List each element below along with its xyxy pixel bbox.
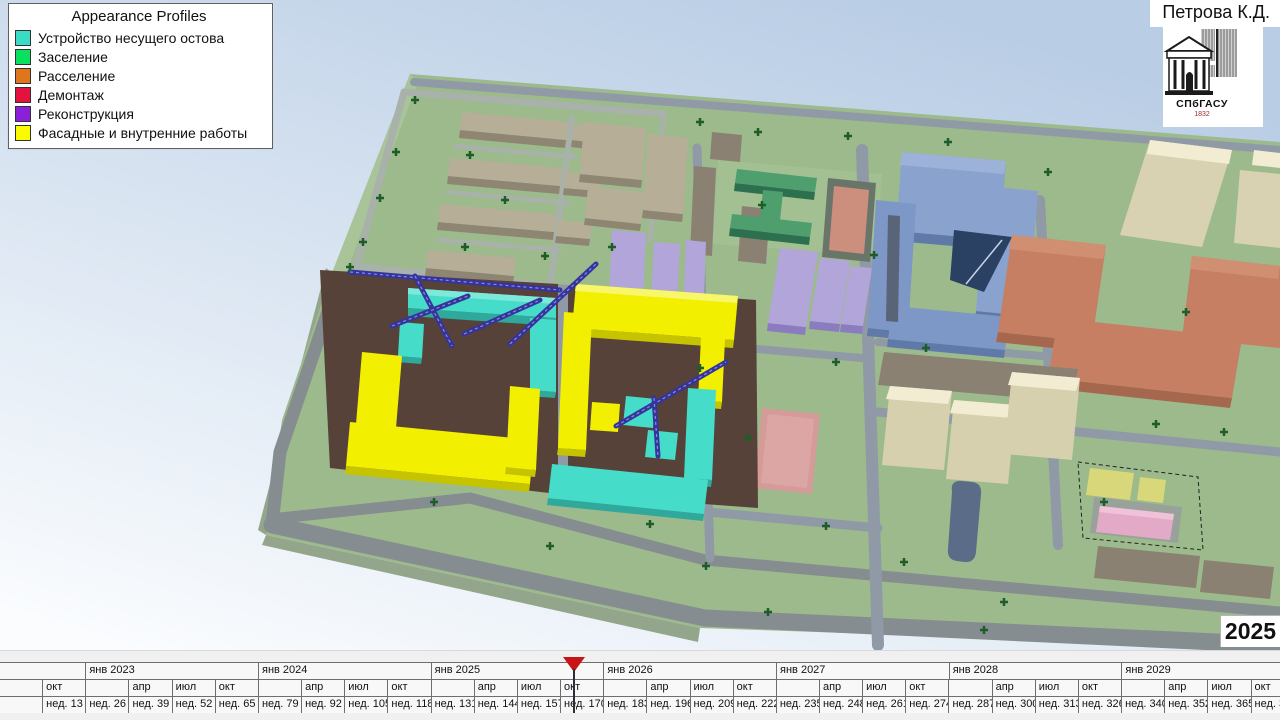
viewport-3d[interactable]: Appearance Profiles Устройство несущего …: [0, 0, 1280, 651]
timeline-quarter-cell[interactable]: июл: [691, 680, 734, 696]
timeline-week-cell[interactable]: нед. 105: [345, 697, 388, 713]
timeline-quarter-cell[interactable]: апр: [993, 680, 1036, 696]
author-label: Петрова К.Д.: [1150, 0, 1280, 27]
timeline-week-cell[interactable]: нед. 131: [432, 697, 475, 713]
legend-item-label: Фасадные и внутренние работы: [38, 125, 247, 141]
highlighted-buildings-right-pit: [547, 284, 738, 521]
timeline-year-cell[interactable]: янв 2029: [1122, 663, 1280, 679]
timeline-quarter-cell[interactable]: окт: [561, 680, 604, 696]
legend-item-label: Расселение: [38, 68, 115, 84]
playhead-line: [573, 669, 575, 713]
timeline-week-cell[interactable]: нед. 157: [518, 697, 561, 713]
timeline-year-cell[interactable]: янв 2028: [950, 663, 1123, 679]
timeline-quarter-cell[interactable]: апр: [1165, 680, 1208, 696]
legend-item: Устройство несущего остова: [15, 28, 263, 47]
timeline-week-cell[interactable]: нед. 352: [1165, 697, 1208, 713]
university-logo: СПбГАСУ 1832: [1163, 27, 1263, 127]
timeline-week-cell[interactable]: нед. 222: [734, 697, 777, 713]
timeline-quarter-cell[interactable]: [604, 680, 647, 696]
legend-item: Реконструкция: [15, 104, 263, 123]
timeline-year-cell[interactable]: янв 2026: [604, 663, 777, 679]
legend-color-swatch: [15, 106, 31, 122]
timeline-week-cell[interactable]: нед. 326: [1079, 697, 1122, 713]
timeline-week-cell[interactable]: нед. 248: [820, 697, 863, 713]
timeline-week-cell[interactable]: нед. 183: [604, 697, 647, 713]
university-logo-icon: СПбГАСУ 1832: [1163, 27, 1245, 119]
timeline-weeks-row: нед. 13нед. 26нед. 39нед. 52нед. 65нед. …: [0, 696, 1280, 713]
legend-item-label: Устройство несущего остова: [38, 30, 224, 46]
timeline-quarter-cell[interactable]: окт: [1079, 680, 1122, 696]
timeline-quarter-cell[interactable]: [259, 680, 302, 696]
timeline-week-cell[interactable]: нед. 26: [86, 697, 129, 713]
legend-color-swatch: [15, 49, 31, 65]
timeline-quarters-row: октаприюлоктаприюлоктаприюлоктаприюлокта…: [0, 679, 1280, 696]
timeline-gantt[interactable]: янв 2023янв 2024янв 2025янв 2026янв 2027…: [0, 662, 1280, 713]
legend-items: Устройство несущего остоваЗаселениеРассе…: [15, 28, 263, 142]
legend-item-label: Заселение: [38, 49, 108, 65]
timeline-quarter-cell[interactable]: окт: [734, 680, 777, 696]
timeline-quarter-cell[interactable]: июл: [518, 680, 561, 696]
legend-item-label: Реконструкция: [38, 106, 134, 122]
legend-item: Фасадные и внутренние работы: [15, 123, 263, 142]
current-year-badge: 2025: [1220, 615, 1280, 647]
timeline-quarter-cell[interactable]: апр: [302, 680, 345, 696]
legend-color-swatch: [15, 87, 31, 103]
timeline-quarter-cell[interactable]: июл: [863, 680, 906, 696]
logo-abbr: СПбГАСУ: [1176, 98, 1228, 110]
timeline-week-cell[interactable]: нед. 340: [1122, 697, 1165, 713]
timeline-quarter-cell[interactable]: окт: [388, 680, 431, 696]
timeline-quarter-cell[interactable]: окт: [43, 680, 86, 696]
timeline-year-cell[interactable]: янв 2027: [777, 663, 950, 679]
timeline-week-cell[interactable]: нед. 300: [993, 697, 1036, 713]
timeline-week-cell[interactable]: нед. 52: [173, 697, 216, 713]
timeline-quarter-cell[interactable]: апр: [129, 680, 172, 696]
timeline-week-cell[interactable]: нед. 261: [863, 697, 906, 713]
timeline-years-row: янв 2023янв 2024янв 2025янв 2026янв 2027…: [0, 662, 1280, 679]
timeline-quarter-cell[interactable]: апр: [820, 680, 863, 696]
timeline-week-cell[interactable]: нед. 196: [647, 697, 690, 713]
logo-year: 1832: [1194, 111, 1210, 118]
legend-color-swatch: [15, 68, 31, 84]
legend-item: Заселение: [15, 47, 263, 66]
timeline-week-cell[interactable]: нед. 65: [216, 697, 259, 713]
sports-field: [822, 178, 876, 262]
timeline-week-cell[interactable]: нед. 118: [388, 697, 431, 713]
timeline-week-cell[interactable]: нед. 79: [259, 697, 302, 713]
timeline-week-cell[interactable]: нед. 39: [129, 697, 172, 713]
timeline-week-cell[interactable]: нед. 365: [1208, 697, 1251, 713]
timeline-quarter-cell[interactable]: [777, 680, 820, 696]
timeline-quarter-cell[interactable]: [949, 680, 992, 696]
pink-field: [754, 408, 820, 494]
timeline-week-cell[interactable]: нед. 235: [777, 697, 820, 713]
timeline-quarter-cell[interactable]: апр: [475, 680, 518, 696]
timeline-quarter-cell[interactable]: окт: [906, 680, 949, 696]
timeline-quarter-cell[interactable]: [1122, 680, 1165, 696]
timeline-quarter-cell[interactable]: [432, 680, 475, 696]
legend-title: Appearance Profiles: [15, 6, 263, 28]
timeline-week-cell[interactable]: нед. 209: [691, 697, 734, 713]
timeline-quarter-cell[interactable]: окт: [1252, 680, 1280, 696]
timeline-week-cell[interactable]: нед. 92: [302, 697, 345, 713]
timeline-week-cell[interactable]: нед. 144: [475, 697, 518, 713]
timeline-year-cell[interactable]: янв 2024: [259, 663, 432, 679]
timeline-year-cell[interactable]: [0, 663, 86, 679]
timeline-quarter-cell[interactable]: апр: [647, 680, 690, 696]
timeline-quarter-cell[interactable]: июл: [1208, 680, 1251, 696]
timeline-quarter-cell[interactable]: июл: [345, 680, 388, 696]
timeline-quarter-cell[interactable]: июл: [173, 680, 216, 696]
legend-item-label: Демонтаж: [38, 87, 104, 103]
timeline-week-cell[interactable]: нед. 287: [949, 697, 992, 713]
timeline-week-cell[interactable]: нед. 313: [1036, 697, 1079, 713]
legend-item: Демонтаж: [15, 85, 263, 104]
timeline-week-cell[interactable]: [0, 697, 43, 713]
timeline-quarter-cell[interactable]: окт: [216, 680, 259, 696]
legend-color-swatch: [15, 30, 31, 46]
legend-color-swatch: [15, 125, 31, 141]
timeline-year-cell[interactable]: янв 2023: [86, 663, 259, 679]
timeline-week-cell[interactable]: нед. 378: [1252, 697, 1280, 713]
timeline-week-cell[interactable]: нед. 170: [561, 697, 604, 713]
pond: [948, 481, 981, 562]
timeline-quarter-cell[interactable]: [0, 680, 43, 696]
legend-item: Расселение: [15, 66, 263, 85]
timeline-week-cell[interactable]: нед. 13: [43, 697, 86, 713]
appearance-profiles-legend: Appearance Profiles Устройство несущего …: [8, 3, 273, 149]
timeline-quarter-cell[interactable]: июл: [1036, 680, 1079, 696]
timeline-week-cell[interactable]: нед. 274: [906, 697, 949, 713]
timeline-quarter-cell[interactable]: [86, 680, 129, 696]
